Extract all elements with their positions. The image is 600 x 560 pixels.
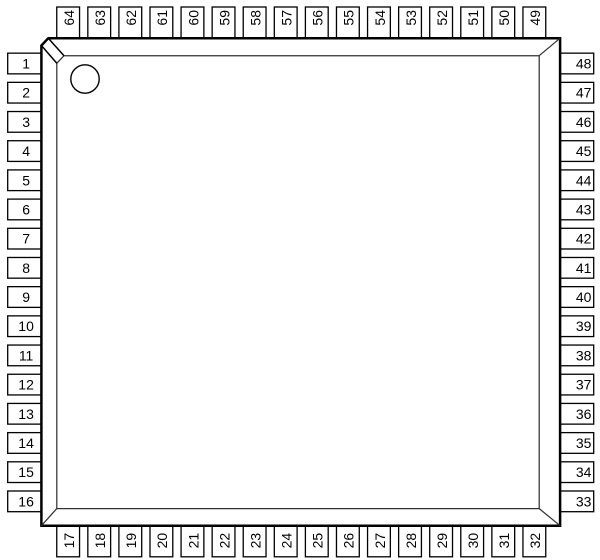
svg-text:2: 2 [22, 85, 30, 101]
svg-text:44: 44 [576, 172, 592, 188]
svg-text:48: 48 [576, 56, 592, 72]
svg-text:24: 24 [279, 533, 295, 549]
svg-text:29: 29 [434, 533, 450, 549]
svg-text:36: 36 [576, 406, 592, 422]
svg-text:30: 30 [465, 533, 481, 549]
svg-text:3: 3 [22, 114, 30, 130]
svg-text:34: 34 [576, 464, 592, 480]
svg-text:60: 60 [185, 10, 201, 26]
svg-text:14: 14 [18, 435, 34, 451]
svg-text:12: 12 [18, 377, 34, 393]
svg-text:51: 51 [465, 10, 481, 26]
svg-text:38: 38 [576, 347, 592, 363]
svg-text:16: 16 [18, 493, 34, 509]
svg-text:43: 43 [576, 201, 592, 217]
svg-text:37: 37 [576, 377, 592, 393]
svg-text:26: 26 [341, 533, 357, 549]
svg-text:42: 42 [576, 231, 592, 247]
svg-text:59: 59 [216, 10, 232, 26]
svg-text:49: 49 [527, 10, 543, 26]
svg-text:10: 10 [18, 318, 34, 334]
svg-text:53: 53 [403, 10, 419, 26]
svg-text:13: 13 [18, 406, 34, 422]
svg-text:32: 32 [527, 533, 543, 549]
svg-text:18: 18 [92, 533, 108, 549]
svg-text:27: 27 [372, 533, 388, 549]
svg-text:35: 35 [576, 435, 592, 451]
svg-text:57: 57 [279, 10, 295, 26]
svg-text:23: 23 [247, 533, 263, 549]
svg-text:17: 17 [61, 533, 77, 549]
svg-text:15: 15 [18, 464, 34, 480]
svg-text:21: 21 [185, 533, 201, 549]
svg-text:61: 61 [154, 10, 170, 26]
svg-text:55: 55 [341, 10, 357, 26]
svg-text:28: 28 [403, 533, 419, 549]
svg-text:7: 7 [22, 231, 30, 247]
svg-text:58: 58 [247, 10, 263, 26]
svg-text:33: 33 [576, 493, 592, 509]
svg-text:8: 8 [22, 260, 30, 276]
svg-text:20: 20 [154, 533, 170, 549]
svg-text:39: 39 [576, 318, 592, 334]
svg-text:6: 6 [22, 201, 30, 217]
svg-text:62: 62 [123, 10, 139, 26]
svg-text:9: 9 [22, 289, 30, 305]
svg-text:4: 4 [22, 143, 30, 159]
svg-text:56: 56 [310, 10, 326, 26]
svg-text:5: 5 [22, 172, 30, 188]
svg-text:31: 31 [496, 533, 512, 549]
svg-text:54: 54 [372, 10, 388, 26]
svg-text:40: 40 [576, 289, 592, 305]
svg-text:11: 11 [19, 347, 34, 363]
svg-text:50: 50 [496, 10, 512, 26]
svg-text:41: 41 [576, 260, 592, 276]
svg-text:47: 47 [576, 85, 592, 101]
svg-text:19: 19 [123, 533, 139, 549]
svg-text:46: 46 [576, 114, 592, 130]
svg-text:63: 63 [92, 10, 108, 26]
svg-text:45: 45 [576, 143, 592, 159]
svg-text:1: 1 [22, 56, 30, 72]
svg-text:64: 64 [61, 10, 77, 26]
svg-text:25: 25 [310, 533, 326, 549]
svg-text:22: 22 [216, 533, 232, 549]
svg-text:52: 52 [434, 10, 450, 26]
